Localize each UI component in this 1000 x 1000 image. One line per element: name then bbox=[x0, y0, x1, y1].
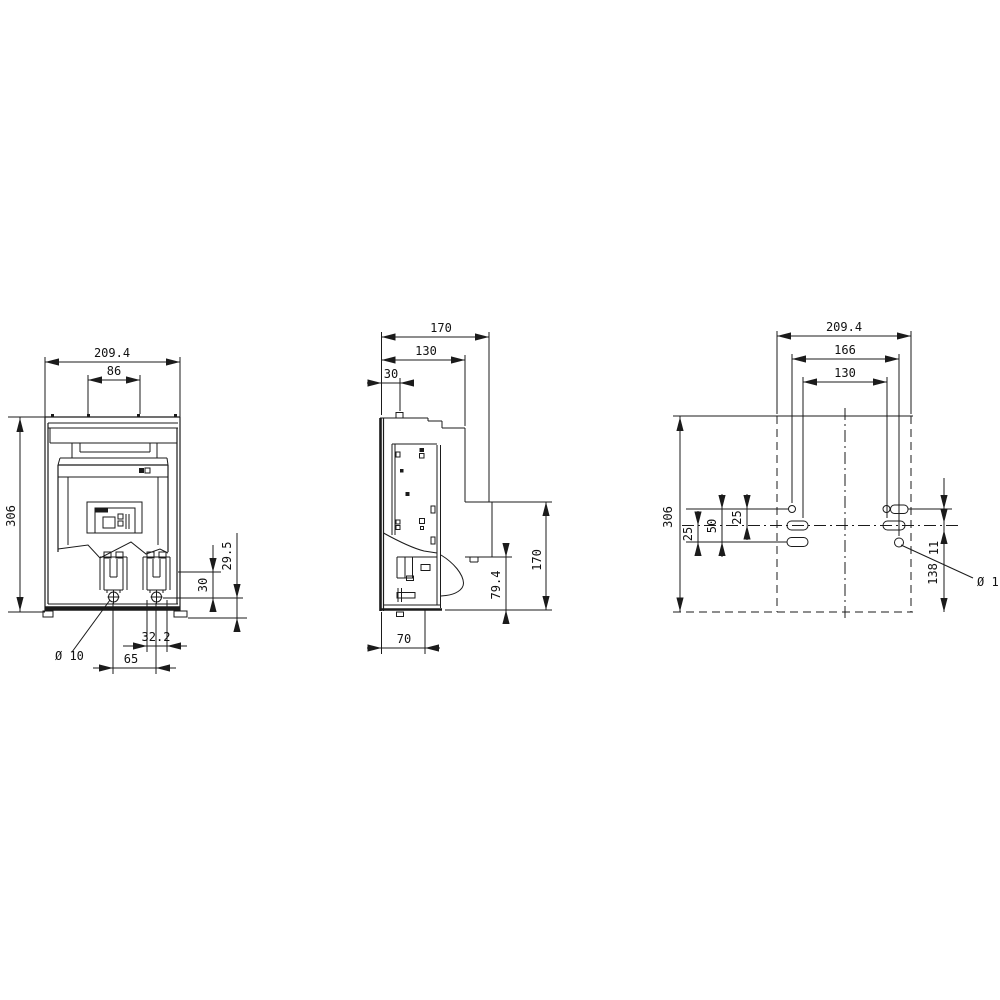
dim-front-30: 30 bbox=[196, 578, 210, 592]
front-fuse-tab-right bbox=[143, 552, 170, 604]
dim-side-70: 70 bbox=[397, 632, 411, 646]
dim-drill-25b: 25 bbox=[730, 510, 744, 524]
dim-drill-138: 138 bbox=[926, 563, 940, 585]
dim-drill-height: 306 bbox=[661, 506, 675, 528]
dim-drill-25a: 25 bbox=[681, 527, 695, 541]
front-view: 306 209.4 86 29.5 30 32.2 bbox=[4, 346, 247, 674]
dim-drill-11: 11 bbox=[927, 541, 941, 555]
front-device-outline bbox=[43, 414, 187, 617]
dim-drill-50: 50 bbox=[705, 519, 719, 533]
side-view: 170 130 30 70 170 79.4 bbox=[367, 321, 552, 654]
drilling-plan: 209.4 166 130 306 25 bbox=[661, 320, 1000, 620]
label-drill-hole-diameter: Ø 11 bbox=[977, 575, 1000, 589]
dim-front-86: 86 bbox=[107, 364, 121, 378]
front-dimensions: 306 209.4 86 29.5 30 32.2 bbox=[4, 346, 247, 674]
dim-front-overall-width: 209.4 bbox=[94, 346, 130, 360]
drill-pattern-outline bbox=[673, 408, 958, 620]
dimension-drawing-page: 306 209.4 86 29.5 30 32.2 bbox=[0, 0, 1000, 1000]
dim-side-30: 30 bbox=[384, 367, 398, 381]
dim-drill-130: 130 bbox=[834, 366, 856, 380]
dim-front-29-5: 29.5 bbox=[220, 542, 234, 571]
dim-side-depth-overall: 170 bbox=[430, 321, 452, 335]
dim-side-170-right: 170 bbox=[530, 549, 544, 571]
drill-dimensions: 209.4 166 130 306 25 bbox=[661, 320, 1000, 612]
dim-front-65: 65 bbox=[124, 652, 138, 666]
dim-side-130: 130 bbox=[415, 344, 437, 358]
dim-side-79-4: 79.4 bbox=[489, 571, 503, 600]
dim-front-height: 306 bbox=[4, 505, 18, 527]
dim-drill-overall-width: 209.4 bbox=[826, 320, 862, 334]
label-front-hole-diameter: Ø 10 bbox=[55, 649, 84, 663]
side-device-outline bbox=[380, 413, 552, 617]
drawing-canvas: 306 209.4 86 29.5 30 32.2 bbox=[0, 0, 1000, 1000]
front-fuse-tab-left bbox=[100, 552, 127, 604]
dim-drill-166: 166 bbox=[834, 343, 856, 357]
